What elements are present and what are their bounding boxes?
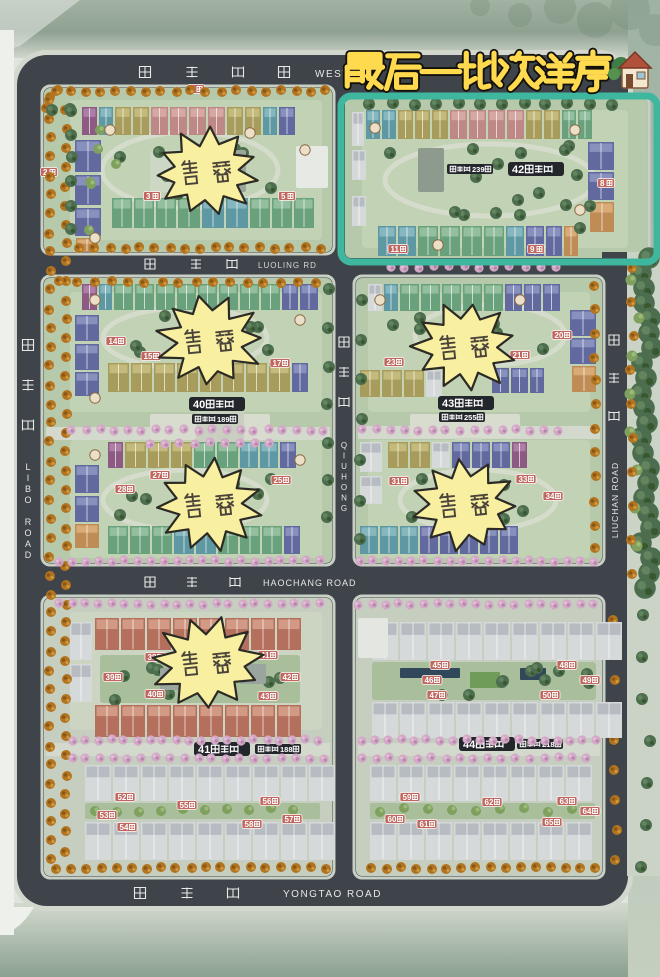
svg-text:55: 55 — [180, 801, 189, 810]
svg-text:LUOLING RD: LUOLING RD — [258, 261, 317, 270]
svg-text:40: 40 — [148, 690, 157, 699]
svg-text:255: 255 — [464, 413, 477, 422]
svg-text:57: 57 — [285, 815, 294, 824]
svg-text:8: 8 — [600, 179, 605, 188]
svg-text:B: B — [25, 484, 31, 494]
svg-text:15: 15 — [144, 352, 153, 361]
svg-text:188: 188 — [280, 745, 293, 754]
svg-text:L: L — [25, 462, 30, 472]
svg-text:O: O — [24, 495, 31, 505]
svg-text:17: 17 — [273, 359, 282, 368]
svg-text:49: 49 — [583, 676, 592, 685]
svg-text:53: 53 — [100, 811, 109, 820]
svg-text:59: 59 — [403, 793, 412, 802]
svg-text:YONGTAO ROAD: YONGTAO ROAD — [283, 889, 382, 900]
svg-text:O: O — [341, 483, 347, 492]
svg-text:64: 64 — [583, 807, 592, 816]
svg-text:189: 189 — [217, 415, 230, 424]
svg-text:42: 42 — [512, 164, 524, 176]
svg-text:11: 11 — [391, 245, 400, 254]
svg-text:D: D — [25, 550, 32, 560]
svg-text:39: 39 — [106, 673, 115, 682]
svg-text:47: 47 — [430, 691, 439, 700]
svg-text:5: 5 — [281, 192, 286, 201]
svg-text:H: H — [341, 473, 347, 482]
svg-text:63: 63 — [560, 797, 569, 806]
svg-text:R: R — [25, 517, 32, 527]
svg-text:46: 46 — [425, 676, 434, 685]
svg-text:54: 54 — [120, 823, 129, 832]
svg-text:20: 20 — [555, 331, 564, 340]
svg-text:239: 239 — [472, 165, 485, 174]
svg-text:9: 9 — [530, 245, 535, 254]
svg-text:52: 52 — [118, 793, 127, 802]
svg-text:45: 45 — [433, 661, 442, 670]
svg-text:48: 48 — [560, 661, 569, 670]
svg-text:25: 25 — [274, 476, 283, 485]
svg-text:33: 33 — [519, 475, 528, 484]
svg-text:14: 14 — [109, 337, 118, 346]
svg-text:Q: Q — [341, 441, 347, 450]
svg-text:21: 21 — [513, 351, 522, 360]
svg-text:40: 40 — [193, 399, 205, 411]
svg-text:50: 50 — [543, 691, 552, 700]
svg-text:42: 42 — [283, 673, 292, 682]
svg-text:58: 58 — [245, 820, 254, 829]
svg-text:23: 23 — [387, 358, 396, 367]
svg-text:62: 62 — [485, 798, 494, 807]
svg-text:28: 28 — [118, 485, 127, 494]
svg-text:G: G — [341, 504, 347, 513]
svg-text:A: A — [25, 539, 31, 549]
svg-text:43: 43 — [261, 692, 270, 701]
svg-text:U: U — [341, 462, 347, 471]
svg-text:65: 65 — [545, 818, 554, 827]
svg-text:I: I — [27, 473, 30, 483]
svg-text:I: I — [343, 452, 345, 461]
svg-text:N: N — [341, 494, 347, 503]
svg-text:27: 27 — [153, 471, 162, 480]
svg-text:43: 43 — [442, 398, 454, 410]
svg-text:LIUCHAN ROAD: LIUCHAN ROAD — [610, 462, 620, 538]
svg-text:34: 34 — [546, 492, 555, 501]
svg-text:61: 61 — [420, 820, 429, 829]
svg-text:O: O — [24, 528, 31, 538]
svg-text:60: 60 — [388, 815, 397, 824]
svg-text:56: 56 — [263, 797, 272, 806]
svg-text:HAOCHANG ROAD: HAOCHANG ROAD — [263, 578, 357, 588]
svg-text:31: 31 — [392, 477, 401, 486]
svg-text:3: 3 — [146, 192, 151, 201]
